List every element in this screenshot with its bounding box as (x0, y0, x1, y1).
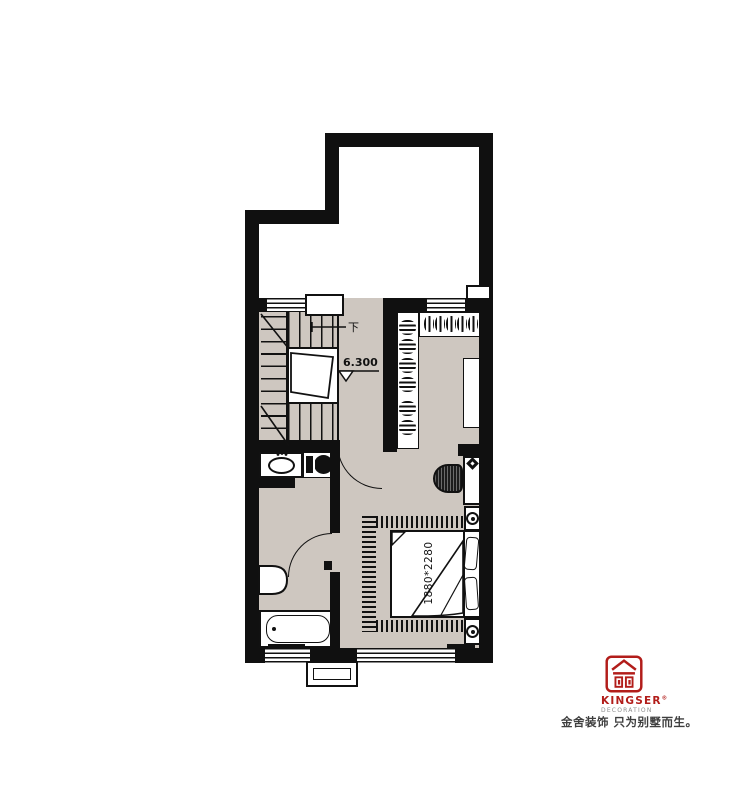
brand-name-text: KINGSER (601, 695, 662, 707)
toilet-tank-icon (306, 456, 313, 473)
table-lamp-icon (466, 625, 479, 638)
wall-stair-bath (259, 440, 340, 452)
kingser-logo-icon (605, 655, 643, 693)
wall-bath-east-lower (330, 572, 340, 648)
wall-bottom-left (245, 648, 265, 663)
hanger-icon (424, 316, 434, 332)
rug-fringe (376, 516, 468, 528)
door-leaf-bathroom (324, 561, 332, 570)
rug-fringe (362, 516, 376, 632)
brand-subtitle: DECORATION (601, 707, 653, 714)
toilet-gap-line (313, 455, 315, 474)
flue-box-inner (313, 668, 351, 680)
stair-treads-bottom-flight (288, 404, 338, 440)
stairs-down-label: 下 (348, 319, 359, 335)
window-bottom-center (357, 648, 455, 663)
window-mid-left (267, 298, 307, 312)
wall-bedroom-west (383, 298, 397, 452)
brand-name: KINGSER® (601, 695, 668, 707)
hanger-icon (446, 316, 456, 332)
hanger-icon (435, 316, 445, 332)
tub-drain-icon (272, 627, 276, 631)
rug-fringe (376, 620, 468, 632)
hanger-icon (399, 358, 416, 373)
wall-top (325, 133, 493, 147)
window-mid-right (427, 298, 465, 312)
floor-plan-page: 下 6.300 1880*2280 KINGSER® DECORATION 金舍… (0, 0, 749, 800)
hanger-icon (399, 377, 416, 392)
cased-opening (305, 294, 344, 316)
pillow (464, 577, 479, 611)
window-sill-mark (447, 644, 475, 649)
hanger-icon (457, 316, 467, 332)
wall-bath-east-upper (330, 440, 340, 533)
window-sill-mark (268, 644, 305, 649)
hanger-icon (399, 320, 416, 335)
elevation-label: 6.300 (343, 356, 378, 369)
wall-right (479, 133, 493, 663)
corridor-opening-floor (343, 298, 384, 312)
sink-icon (268, 457, 295, 474)
wall-mid-right (465, 298, 481, 312)
chair (433, 464, 463, 493)
hanger-icon (399, 420, 416, 435)
bed-size-label: 1880*2280 (423, 538, 435, 608)
wall-bottom-right (455, 648, 493, 663)
window-bottom-left (265, 648, 310, 663)
wall-desk-stub (458, 444, 481, 456)
stair-landing (287, 347, 339, 404)
wall-upper-left (245, 210, 339, 224)
brand-tagline: 金舍装饰 只为别墅而生。 (561, 714, 698, 730)
stair-treads-left-flight (261, 316, 286, 440)
hanger-icon (399, 401, 416, 416)
wall-mid-left (245, 298, 267, 312)
wall-left (245, 210, 259, 663)
wall-notch (466, 285, 491, 300)
registered-mark: ® (662, 696, 669, 702)
wall-niche-bottom (259, 478, 295, 488)
table-lamp-icon (466, 512, 479, 525)
hanger-icon (468, 316, 478, 332)
stair-treads-top-flight (288, 312, 338, 347)
hanger-icon (399, 339, 416, 354)
